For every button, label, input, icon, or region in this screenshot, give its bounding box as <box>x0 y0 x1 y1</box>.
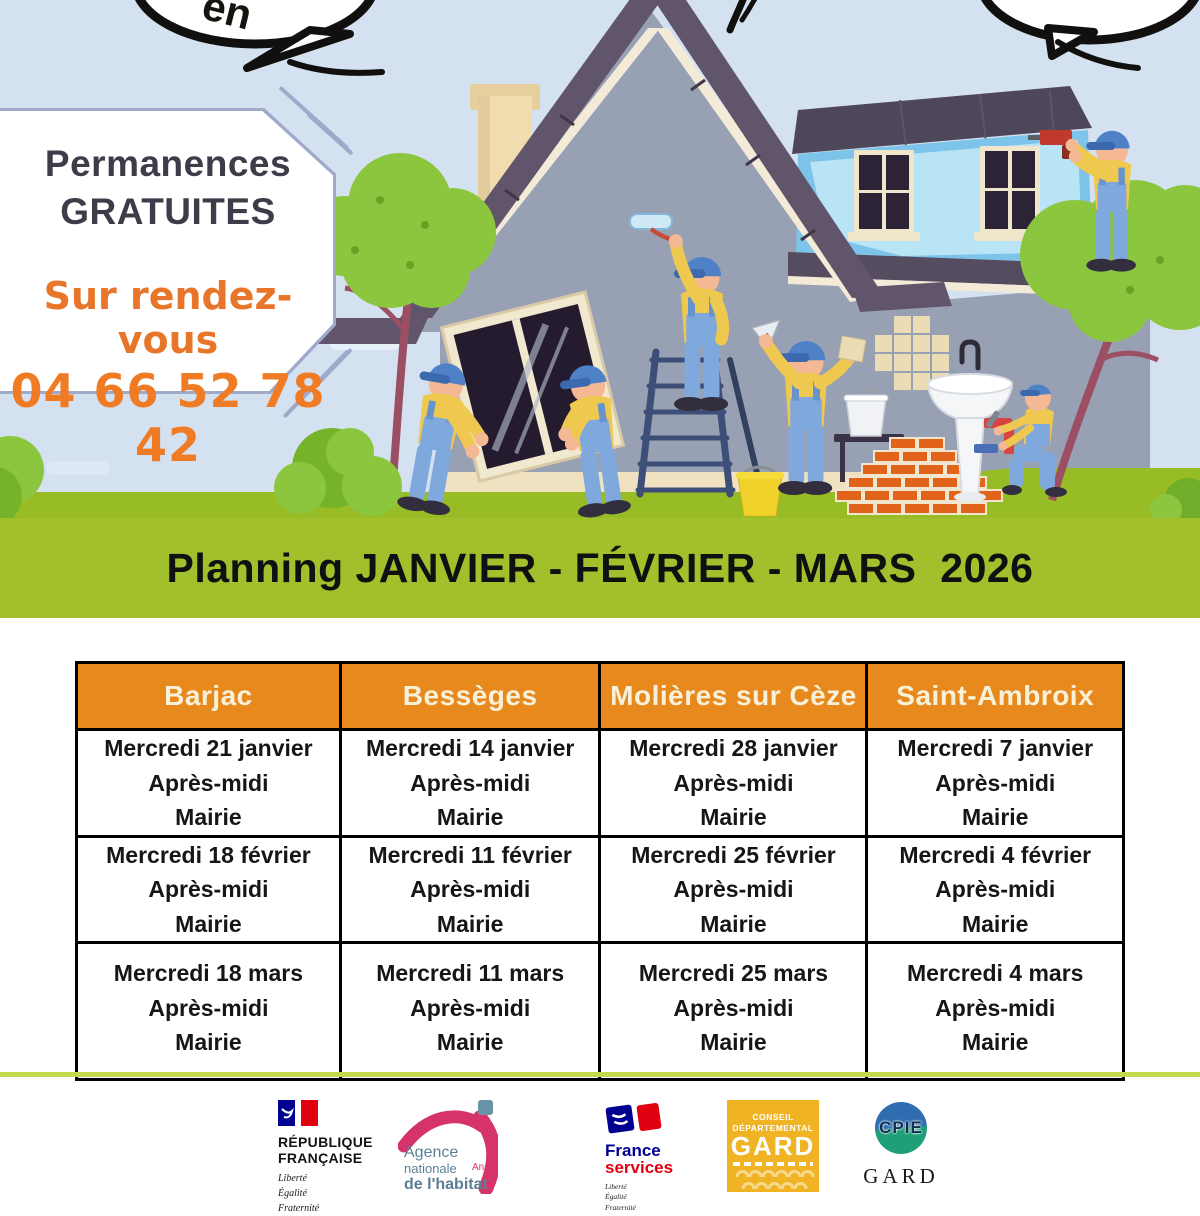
session-time: Après-midi <box>342 766 599 801</box>
schedule-cell: Mercredi 14 janvier Après-midi Mairie <box>340 730 600 837</box>
column-header-barjac: Barjac <box>77 663 341 730</box>
poster: en Permanences GRATUITES Sur rendez-vous… <box>0 0 1200 1200</box>
motto-liberte: Liberté <box>278 1171 388 1186</box>
extension-window-left <box>848 150 920 241</box>
session-place: Mairie <box>342 800 599 835</box>
aqueduct-icon <box>731 1161 815 1191</box>
title-line-2: GRATUITES <box>0 188 336 236</box>
title-line-1: Permanences <box>0 140 336 188</box>
anah-logo: Agence nationale de l'habitat Anah <box>398 1098 498 1194</box>
column-header-besseges: Bessèges <box>340 663 600 730</box>
fs-motto: Liberté Égalité Fraternité <box>605 1182 685 1214</box>
white-bucket <box>844 390 888 436</box>
cpie-abbr: CPIE <box>879 1118 923 1138</box>
cdg-conseil: CONSEIL <box>727 1112 819 1123</box>
appointment-label: Sur rendez-vous <box>0 274 336 362</box>
session-place: Mairie <box>601 907 865 942</box>
session-place: Mairie <box>868 1025 1122 1060</box>
session-time: Après-midi <box>601 991 865 1026</box>
french-flag-icon <box>278 1100 318 1126</box>
tile-in-hand <box>838 336 865 362</box>
republique-line2: FRANÇAISE <box>278 1150 388 1166</box>
session-date: Mercredi 4 mars <box>868 956 1122 991</box>
session-place: Mairie <box>342 907 599 942</box>
header-row: Barjac Bessèges Molières sur Cèze Saint-… <box>77 663 1124 730</box>
fs-motto-liberte: Liberté <box>605 1182 685 1193</box>
schedule-cell: Mercredi 4 mars Après-midi Mairie <box>867 943 1124 1080</box>
session-date: Mercredi 25 février <box>601 838 865 873</box>
republique-line1: RÉPUBLIQUE <box>278 1134 388 1150</box>
cpie-name: GARD <box>856 1164 946 1189</box>
session-time: Après-midi <box>78 991 339 1026</box>
session-date: Mercredi 21 janvier <box>78 731 339 766</box>
schedule-cell: Mercredi 25 février Après-midi Mairie <box>600 836 867 943</box>
schedule-cell: Mercredi 7 janvier Après-midi Mairie <box>867 730 1124 837</box>
session-date: Mercredi 25 mars <box>601 956 865 991</box>
session-place: Mairie <box>868 800 1122 835</box>
cdg-top-label: CONSEIL DÉPARTEMENTAL <box>727 1112 819 1133</box>
conseil-departemental-gard-logo: CONSEIL DÉPARTEMENTAL GARD <box>727 1100 819 1192</box>
republique-motto: Liberté Égalité Fraternité <box>278 1171 388 1216</box>
session-place: Mairie <box>78 1025 339 1060</box>
cpie-globe-icon: CPIE <box>875 1102 927 1154</box>
anah-line1: Agence <box>404 1144 488 1162</box>
cpie-gard-logo: CPIE GARD <box>856 1102 946 1189</box>
session-time: Après-midi <box>868 991 1122 1026</box>
session-time: Après-midi <box>342 991 599 1026</box>
motto-egalite: Égalité <box>278 1186 388 1201</box>
footer-divider <box>0 1072 1200 1077</box>
session-place: Mairie <box>601 800 865 835</box>
cdg-name: GARD <box>727 1133 819 1160</box>
france-services-logo: France services Liberté Égalité Fraterni… <box>605 1101 685 1213</box>
republique-title: RÉPUBLIQUE FRANÇAISE <box>278 1134 388 1166</box>
schedule-cell: Mercredi 25 mars Après-midi Mairie <box>600 943 867 1080</box>
session-time: Après-midi <box>868 766 1122 801</box>
planning-banner: Planning JANVIER - FÉVRIER - MARS 2026 <box>0 518 1200 618</box>
free-sessions-title: Permanences GRATUITES <box>0 140 336 236</box>
session-date: Mercredi 11 mars <box>342 956 599 991</box>
fs-motto-egalite: Égalité <box>605 1192 685 1203</box>
session-time: Après-midi <box>601 872 865 907</box>
session-date: Mercredi 14 janvier <box>342 731 599 766</box>
schedule-cell: Mercredi 21 janvier Après-midi Mairie <box>77 730 341 837</box>
session-place: Mairie <box>78 800 339 835</box>
anah-line3: de l'habitat <box>404 1176 488 1194</box>
session-time: Après-midi <box>868 872 1122 907</box>
phone-number: 04 66 52 78 42 <box>0 364 336 472</box>
table-row-january: Mercredi 21 janvier Après-midi Mairie Me… <box>77 730 1124 837</box>
schedule-cell: Mercredi 11 mars Après-midi Mairie <box>340 943 600 1080</box>
fs-motto-fraternite: Fraternité <box>605 1203 685 1214</box>
fs-line1: France <box>605 1142 685 1159</box>
session-time: Après-midi <box>78 872 339 907</box>
yellow-bucket <box>736 467 784 516</box>
session-date: Mercredi 18 mars <box>78 956 339 991</box>
session-date: Mercredi 11 février <box>342 838 599 873</box>
session-date: Mercredi 7 janvier <box>868 731 1122 766</box>
schedule-cell: Mercredi 18 mars Après-midi Mairie <box>77 943 341 1080</box>
session-place: Mairie <box>601 1025 865 1060</box>
column-header-molieres: Molières sur Cèze <box>600 663 867 730</box>
motto-fraternite: Fraternité <box>278 1201 388 1216</box>
session-time: Après-midi <box>601 766 865 801</box>
schedule-table: Barjac Bessèges Molières sur Cèze Saint-… <box>75 661 1125 1081</box>
fs-line2: services <box>605 1159 685 1178</box>
session-place: Mairie <box>342 1025 599 1060</box>
session-date: Mercredi 18 février <box>78 838 339 873</box>
table-row-february: Mercredi 18 février Après-midi Mairie Me… <box>77 836 1124 943</box>
session-time: Après-midi <box>342 872 599 907</box>
schedule-cell: Mercredi 4 février Après-midi Mairie <box>867 836 1124 943</box>
republique-francaise-logo: RÉPUBLIQUE FRANÇAISE Liberté Égalité Fra… <box>278 1100 388 1216</box>
session-time: Après-midi <box>78 766 339 801</box>
schedule-cell: Mercredi 18 février Après-midi Mairie <box>77 836 341 943</box>
info-box-content: Permanences GRATUITES Sur rendez-vous 04… <box>0 108 336 394</box>
session-date: Mercredi 4 février <box>868 838 1122 873</box>
session-place: Mairie <box>868 907 1122 942</box>
anah-abbr: Anah <box>472 1162 495 1173</box>
table-row-march: Mercredi 18 mars Après-midi Mairie Mercr… <box>77 943 1124 1080</box>
schedule-cell: Mercredi 11 février Après-midi Mairie <box>340 836 600 943</box>
session-date: Mercredi 28 janvier <box>601 731 865 766</box>
session-place: Mairie <box>78 907 339 942</box>
column-header-saint-ambroix: Saint-Ambroix <box>867 663 1124 730</box>
schedule-cell: Mercredi 28 janvier Après-midi Mairie <box>600 730 867 837</box>
france-services-flag-icon <box>605 1101 667 1135</box>
planning-title: Planning JANVIER - FÉVRIER - MARS 2026 <box>167 545 1034 592</box>
